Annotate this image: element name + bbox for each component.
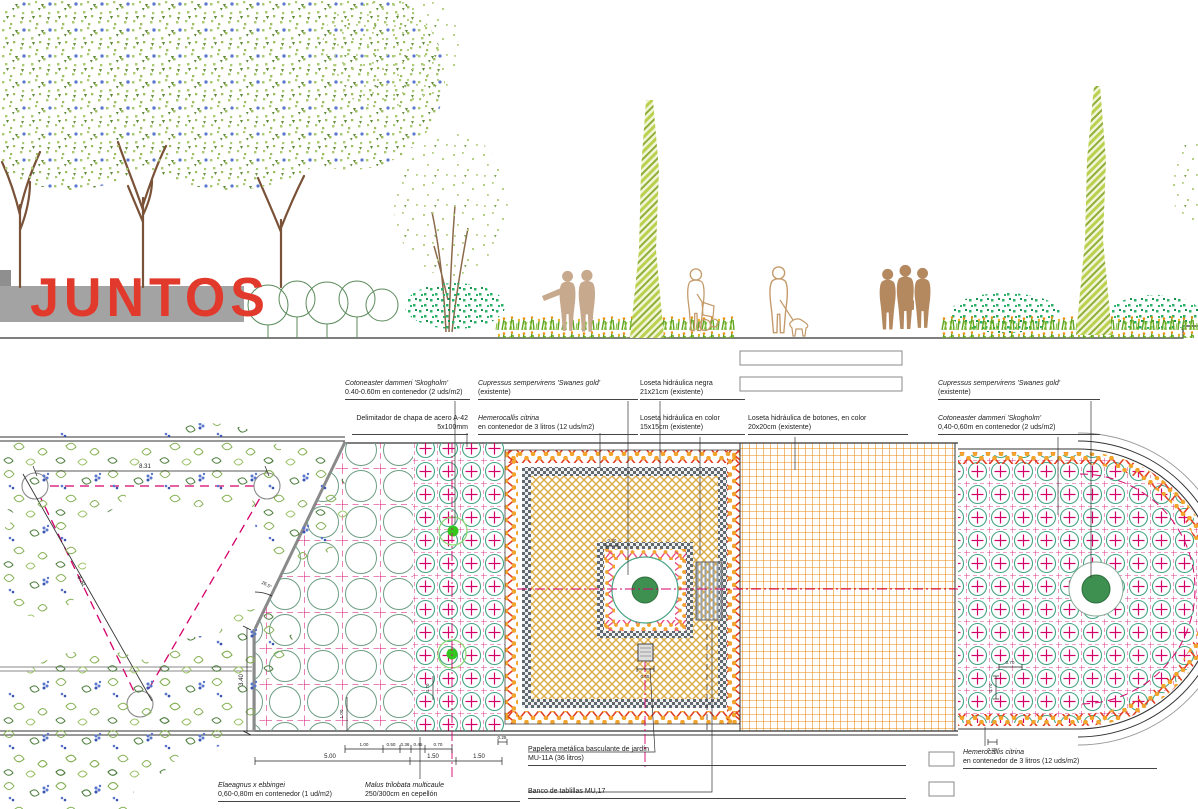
label-loseta-botones: Loseta hidráulica de botones, en color 2…	[748, 414, 908, 435]
label-hemerocallis-bottom: Hemerocallis citrina en contenedor de 3 …	[963, 748, 1157, 769]
bench	[696, 562, 722, 620]
people-group	[880, 265, 931, 330]
svg-text:3.40: 3.40	[239, 674, 245, 686]
label-cotoneaster-right: Cotoneaster dammeri 'Skogholm' 0,40-0,60…	[938, 414, 1100, 435]
label-papelera: Papelera metálica basculante de jardín M…	[528, 745, 906, 766]
label-malus: Malus trilobata multicaule 250/300cm en …	[365, 781, 520, 802]
label-hemerocallis-top: Hemerocallis citrina en contenedor de 3 …	[478, 414, 638, 435]
grass-strip-left	[495, 316, 735, 338]
svg-text:0.45: 0.45	[641, 674, 650, 679]
drawing-canvas: 8.31 8.31 26.5° 3.40 1.00 1.00 0.50 0.36…	[0, 0, 1198, 809]
central-plaza	[522, 467, 727, 708]
button-tile-area	[740, 443, 955, 731]
svg-text:1.00: 1.00	[339, 709, 344, 718]
label-loseta-color: Loseta hidráulica en color 15x15cm (exis…	[640, 414, 745, 435]
litter-bin	[638, 644, 653, 661]
round-cap	[958, 433, 1198, 745]
svg-text:0.50: 0.50	[387, 742, 396, 747]
svg-text:8.31: 8.31	[139, 464, 151, 470]
svg-text:1.50: 1.50	[427, 754, 439, 760]
cypress-tree-left	[630, 100, 664, 338]
edge-canopy	[1172, 140, 1198, 230]
svg-text:0.45: 0.45	[414, 742, 423, 747]
sign-title: JUNTOS	[30, 267, 250, 330]
svg-text:0.70: 0.70	[425, 683, 430, 692]
outline-shrubs	[248, 281, 398, 338]
malus-canopy	[394, 133, 510, 277]
svg-text:0.70: 0.70	[1006, 660, 1015, 665]
existing-tree-plaza	[632, 577, 658, 603]
svg-text:0.70: 0.70	[434, 742, 443, 747]
svg-text:0.70: 0.70	[988, 683, 993, 692]
svg-text:1.00: 1.00	[360, 742, 369, 747]
landscape-drawing: 8.31 8.31 26.5° 3.40 1.00 1.00 0.50 0.36…	[0, 0, 1198, 809]
tree-canopies	[0, 0, 1198, 277]
svg-text:5.00: 5.00	[324, 754, 336, 760]
label-cupressus-right: Cupressus sempervirens 'Swanes gold' (ex…	[938, 379, 1100, 400]
existing-tree-cap	[1082, 575, 1110, 603]
label-loseta-negra: Loseta hidráulica negra 21x21cm (existen…	[640, 379, 745, 400]
label-cupressus-top: Cupressus sempervirens 'Swanes gold' (ex…	[478, 379, 638, 400]
cypress-tree-right	[1076, 86, 1112, 335]
label-banco: Banco de tablillas MU,17	[528, 787, 906, 799]
label-cotoneaster-top: Cotoneaster dammeri 'Skogholm' 0.40-0.60…	[345, 379, 470, 400]
grass-strip-right	[940, 316, 1198, 338]
person-with-dog	[770, 267, 808, 336]
svg-text:0.30: 0.30	[608, 538, 617, 543]
svg-text:26.5°: 26.5°	[261, 580, 273, 590]
svg-text:0.36: 0.36	[401, 742, 410, 747]
svg-text:0.25: 0.25	[498, 735, 507, 740]
svg-text:1.50: 1.50	[473, 754, 485, 760]
label-delimitador: Delimitador de chapa de acero A-42 5x100…	[352, 414, 468, 435]
